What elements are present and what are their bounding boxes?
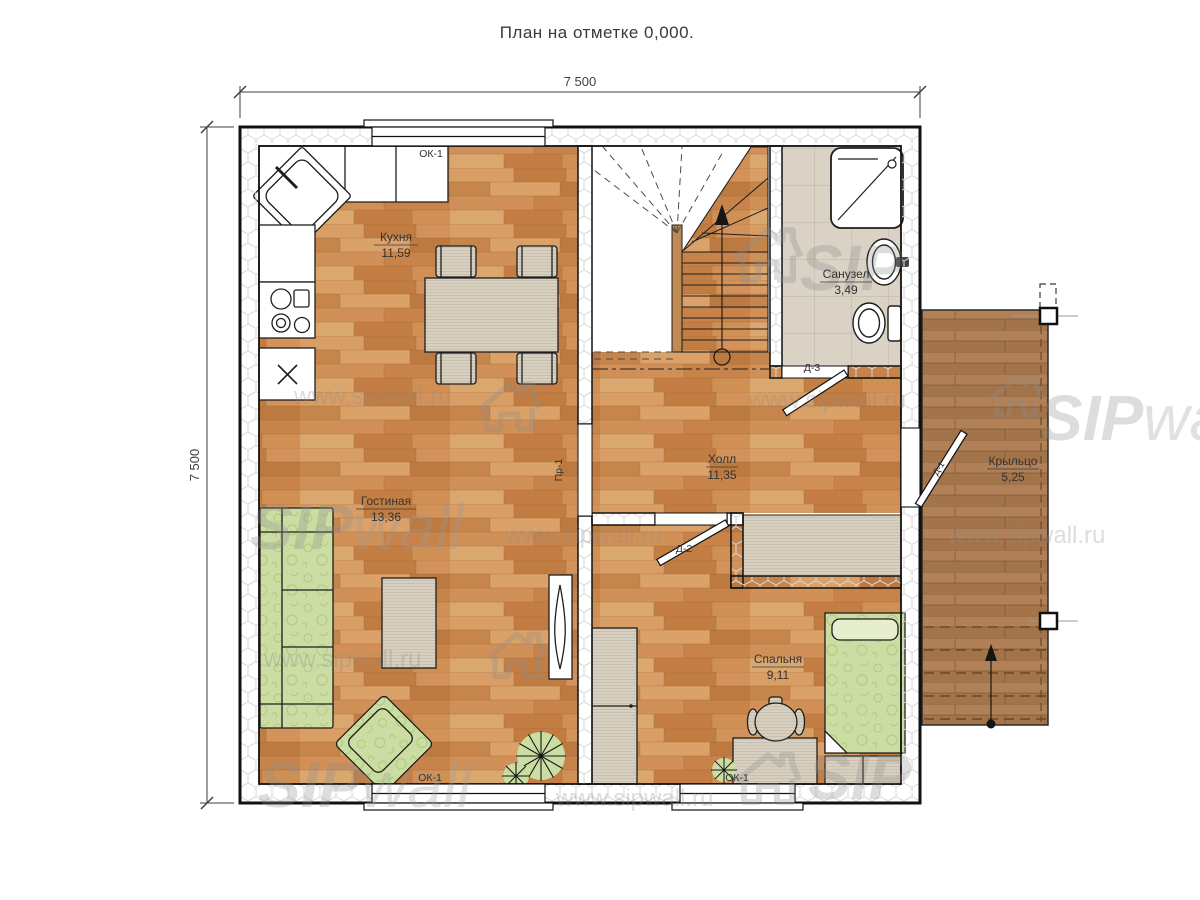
window-kitchen: [364, 120, 553, 146]
dim-left: 7 500: [187, 121, 234, 809]
passage-tag: Пр-1: [553, 458, 565, 481]
bedroom-area: 9,11: [767, 668, 790, 682]
floor-plan-page: SIP SIPwall SIPwall SIP SIPwall www.sipw…: [0, 0, 1200, 900]
floor-plan-drawing: SIP SIPwall SIPwall SIP SIPwall www.sipw…: [0, 0, 1200, 900]
watermark-url: www.sipwall.ru: [504, 522, 662, 549]
bathroom-name: Санузел: [823, 267, 870, 281]
watermark-url: www.sipwall.ru: [947, 522, 1105, 549]
dim-top: 7 500: [234, 74, 926, 118]
window-tag: ОК-1: [725, 772, 749, 784]
dim-left-label: 7 500: [187, 449, 202, 482]
watermark-sip: SIPwall: [1040, 382, 1200, 454]
passage-opening: [578, 424, 592, 516]
bedroom-name: Спальня: [754, 652, 802, 666]
porch: [922, 284, 1078, 729]
watermark-sipwall: SIPwall: [250, 491, 465, 563]
stair-newel: [672, 225, 682, 352]
wardrobe: [592, 628, 637, 784]
bathroom-area: 3,49: [834, 283, 858, 297]
bed: [825, 613, 905, 753]
watermark-sipwall: SIPwall: [258, 749, 473, 821]
hall-area: 11,35: [707, 468, 736, 482]
watermark-sip: SIP: [808, 741, 911, 813]
watermark-url: www.sipwall.ru: [747, 387, 905, 414]
hall-name: Холл: [708, 452, 736, 466]
living-area: 13,36: [371, 510, 401, 524]
stove: [259, 282, 315, 338]
dim-top-label: 7 500: [564, 74, 597, 89]
dining-table: [425, 278, 558, 352]
watermark-url: www.sipwall.ru: [293, 383, 451, 410]
porch-deck: [922, 310, 1048, 725]
watermark-url: www.sipwall.ru: [555, 785, 713, 812]
door-tag-d2: Д-2: [676, 543, 693, 555]
watermark-url: www.sipwall.ru: [263, 646, 421, 673]
kitchen-name: Кухня: [380, 230, 412, 244]
kitchen-cabinet: [259, 225, 315, 282]
plan-title: План на отметке 0,000.: [500, 23, 695, 42]
porch-name: Крыльцо: [989, 454, 1038, 468]
porch-area: 5,25: [1001, 470, 1025, 484]
living-name: Гостиная: [361, 494, 411, 508]
toilet: [853, 303, 901, 343]
window-tag: ОК-1: [419, 148, 443, 160]
hall-label: Холл 11,35: [706, 452, 738, 482]
door-tag-d3: Д-3: [804, 362, 821, 374]
tv: [549, 575, 572, 679]
shower: [831, 148, 903, 228]
kitchen-area: 11,59: [381, 246, 410, 260]
roof-overhang-dashed: [1040, 284, 1056, 310]
hall-closet: [743, 515, 901, 576]
window-tag: ОК-1: [418, 772, 442, 784]
